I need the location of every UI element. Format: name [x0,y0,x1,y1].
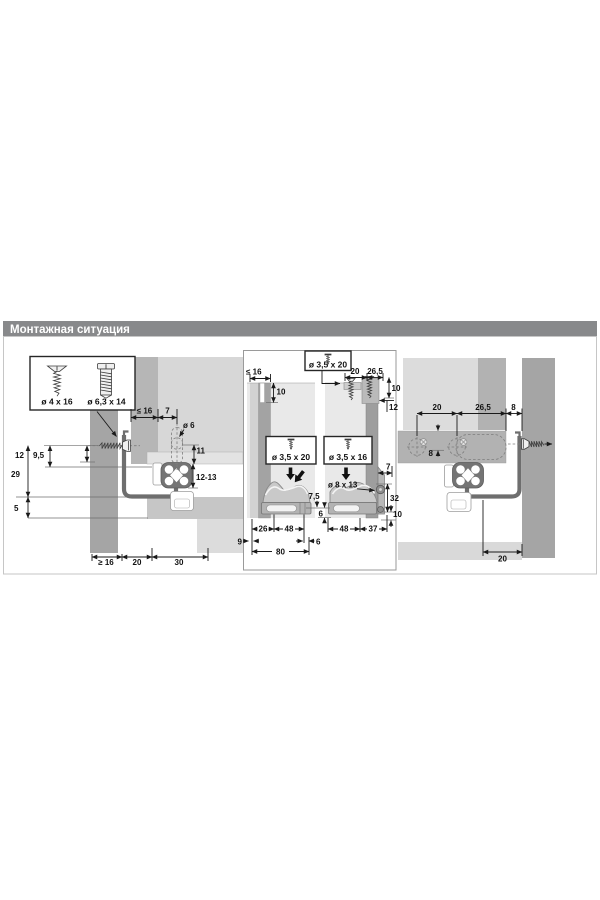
header-bar: Монтажная ситуация [3,321,597,337]
dim-29: 29 [11,470,20,479]
dim-top-20: 20 [351,367,360,376]
dim-panel-max: ≤ 16 [137,407,153,416]
dim-7: 7 [165,407,170,416]
dim-12-13: 12-13 [196,473,217,482]
hook-slot [260,383,265,403]
dim-10-right: 10 [393,510,402,519]
callout-screw-right: ø 3,5 x 16 [329,452,368,462]
dim-9-5: 9,5 [33,451,45,460]
dim-rv-265: 26,5 [475,403,491,412]
dim-6: 6 [316,538,321,547]
dim-rear-panel-max: ≤ 16 [246,368,262,377]
dim-min16: ≥ 16 [98,558,114,567]
dim-5: 5 [14,504,19,513]
dim-6-height: 6 [319,510,324,519]
dim-11: 11 [197,447,206,456]
dim-32: 32 [390,494,399,503]
cabinet-top-interior [403,358,478,430]
dim-top-12: 12 [389,403,398,412]
page-title: Монтажная ситуация [10,324,130,336]
dim-top-10: 10 [392,384,401,393]
legend-label-euro: ø 6,3 x 14 [87,397,126,407]
dim-slot-10: 10 [277,388,286,397]
cabinet-bottom-panel [147,497,243,519]
rail-profile-icon [453,463,484,489]
drawer-bottom-panel [147,452,243,464]
legend-label-countersunk: ø 4 x 16 [41,397,72,407]
dim-7-5: 7,5 [309,492,321,501]
dim-37: 37 [369,525,378,534]
dim-7-right: 7 [386,463,391,472]
dim-rv-20: 20 [433,403,442,412]
dim-20: 20 [133,558,142,567]
dim-rv-8-inner: 8 [429,449,434,458]
dim-9: 9 [238,538,243,547]
callout-screw-left: ø 3,5 x 20 [272,452,311,462]
dim-26: 26 [259,525,268,534]
rear-view-box: ø 3,5 x 20 20 26,5 10 12 ≤ 16 [238,351,403,571]
technical-drawing-svg: Монтажная ситуация [0,0,600,900]
page: Монтажная ситуация [0,0,600,900]
dim-hole-dia: ø 6 [183,421,195,430]
dim-rv-8: 8 [511,403,516,412]
callout-hole: ø 8 x 13 [328,481,358,490]
drawer-interior [158,357,243,452]
dim-top-265: 26,5 [367,367,383,376]
dim-48-right: 48 [340,525,349,534]
rail-profile-icon [161,463,192,489]
dim-12: 12 [15,451,24,460]
callout-screw-top: ø 3,5 x 20 [309,360,348,370]
dim-80: 80 [276,548,285,557]
dim-rv-20-bottom: 20 [498,555,507,564]
cabinet-side-panel-right [522,358,555,558]
dim-48-left: 48 [285,525,294,534]
dim-30: 30 [175,558,184,567]
